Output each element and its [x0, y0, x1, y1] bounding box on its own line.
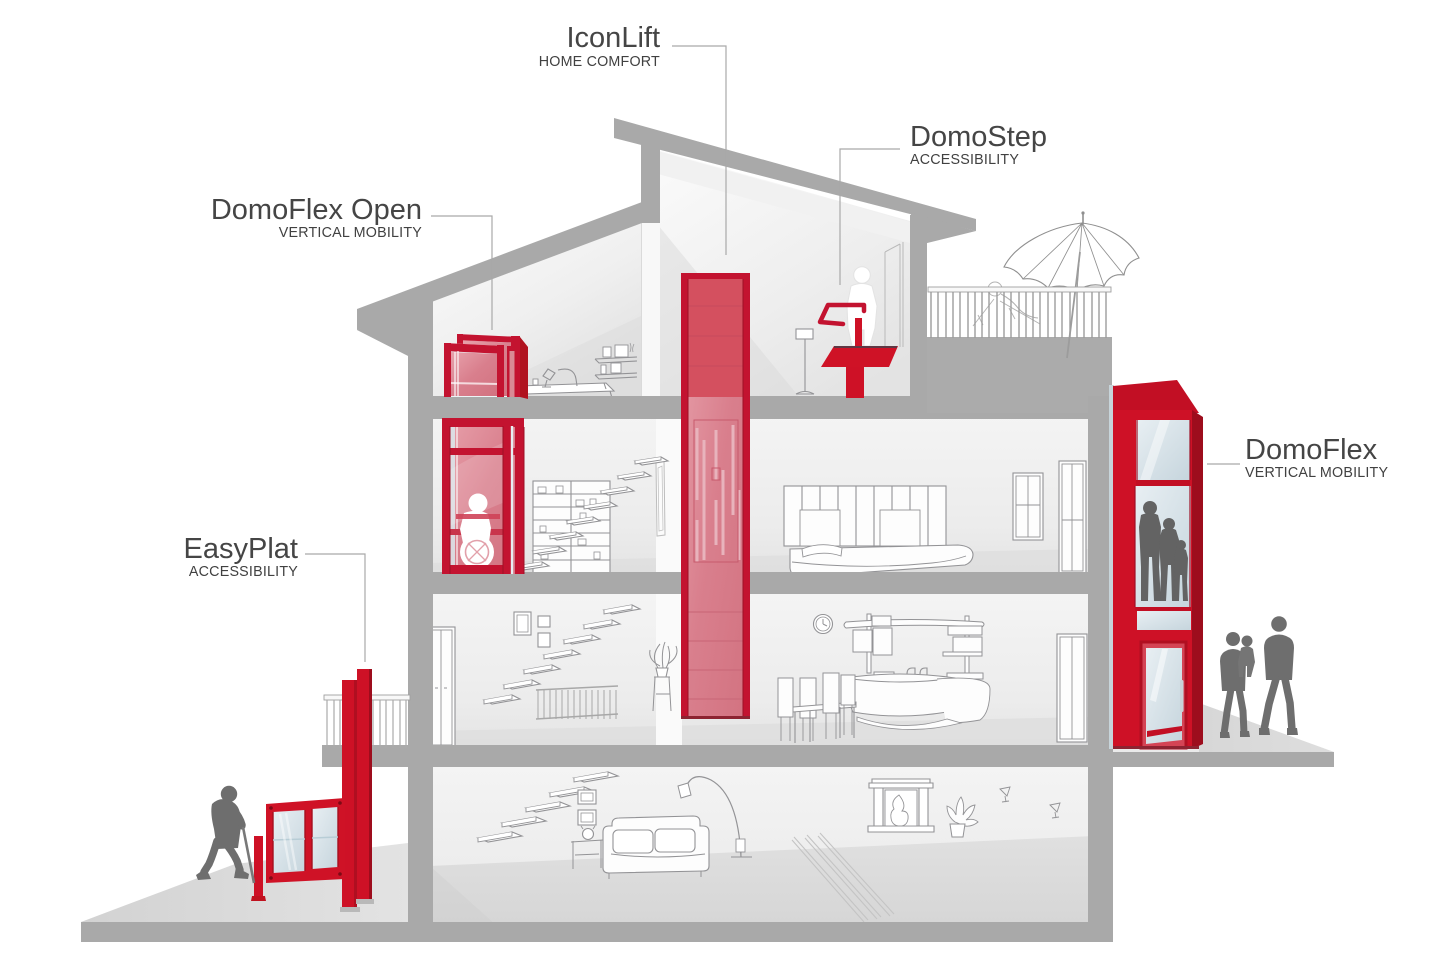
- svg-text:VERTICAL MOBILITY: VERTICAL MOBILITY: [1245, 465, 1388, 481]
- svg-text:ACCESSIBILITY: ACCESSIBILITY: [910, 152, 1019, 168]
- svg-text:DomoFlex: DomoFlex: [1245, 434, 1378, 466]
- svg-text:HOME COMFORT: HOME COMFORT: [539, 54, 660, 70]
- svg-text:ACCESSIBILITY: ACCESSIBILITY: [189, 564, 298, 580]
- svg-text:DomoStep: DomoStep: [910, 121, 1047, 153]
- svg-text:EasyPlat: EasyPlat: [184, 533, 298, 565]
- svg-text:IconLift: IconLift: [567, 22, 661, 54]
- svg-text:VERTICAL MOBILITY: VERTICAL MOBILITY: [279, 225, 422, 241]
- svg-text:DomoFlex Open: DomoFlex Open: [211, 194, 422, 226]
